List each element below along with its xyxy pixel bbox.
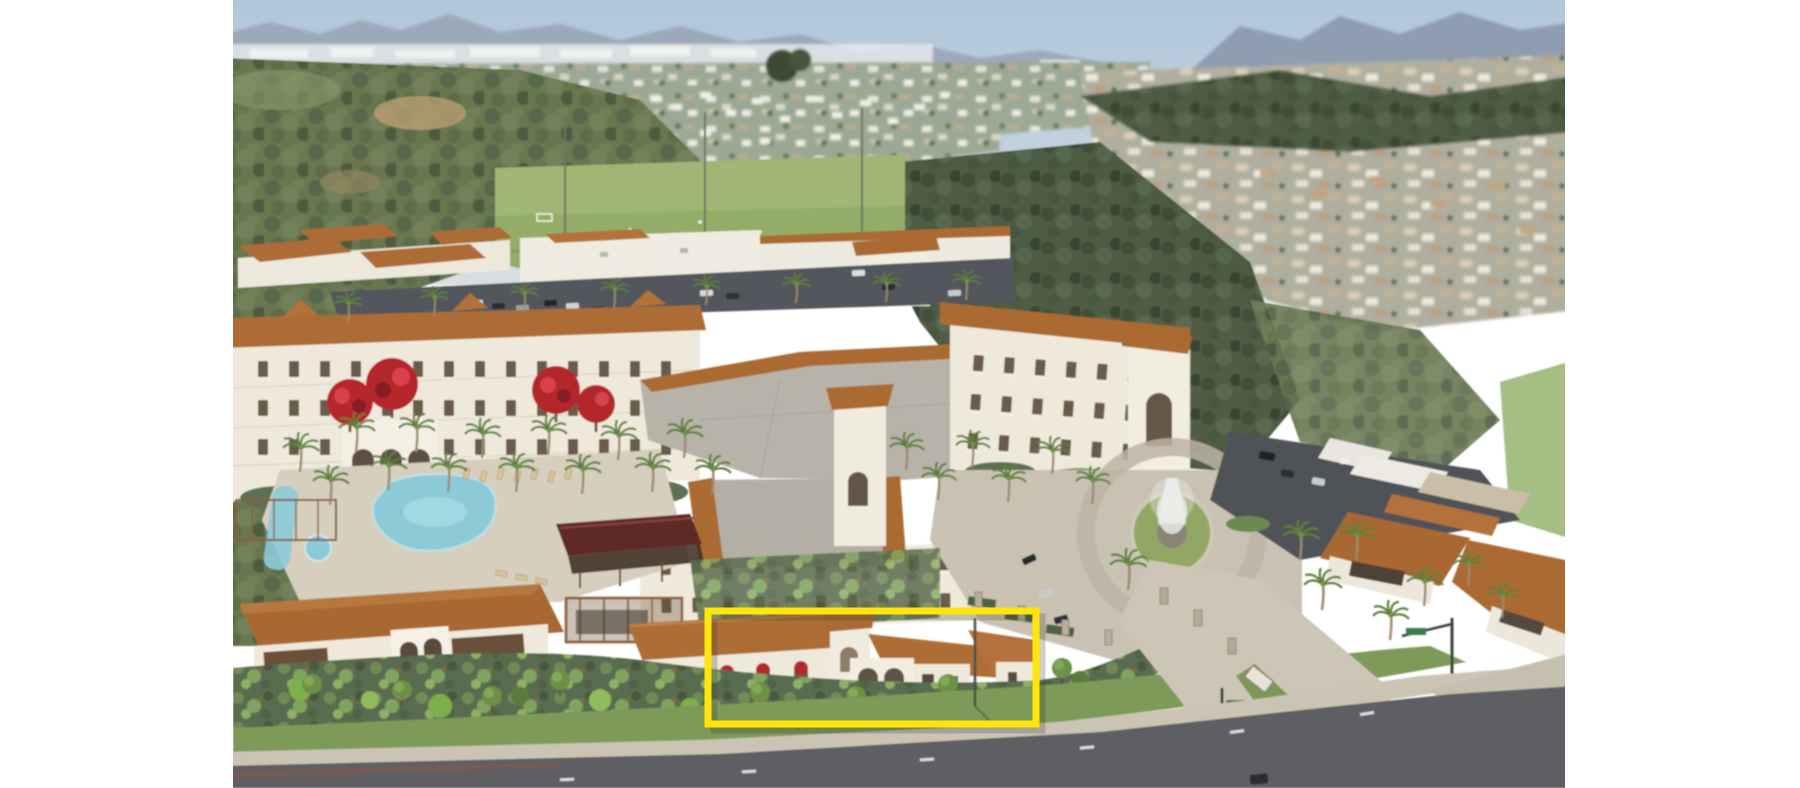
entry-tower — [826, 384, 894, 546]
annotated-aerial-rendering — [0, 0, 1800, 788]
document-page — [0, 0, 1800, 788]
scene — [220, 0, 1575, 788]
apartment-building-east — [940, 302, 1192, 488]
photo-area — [220, 0, 1575, 788]
car-on-road — [1250, 773, 1269, 785]
